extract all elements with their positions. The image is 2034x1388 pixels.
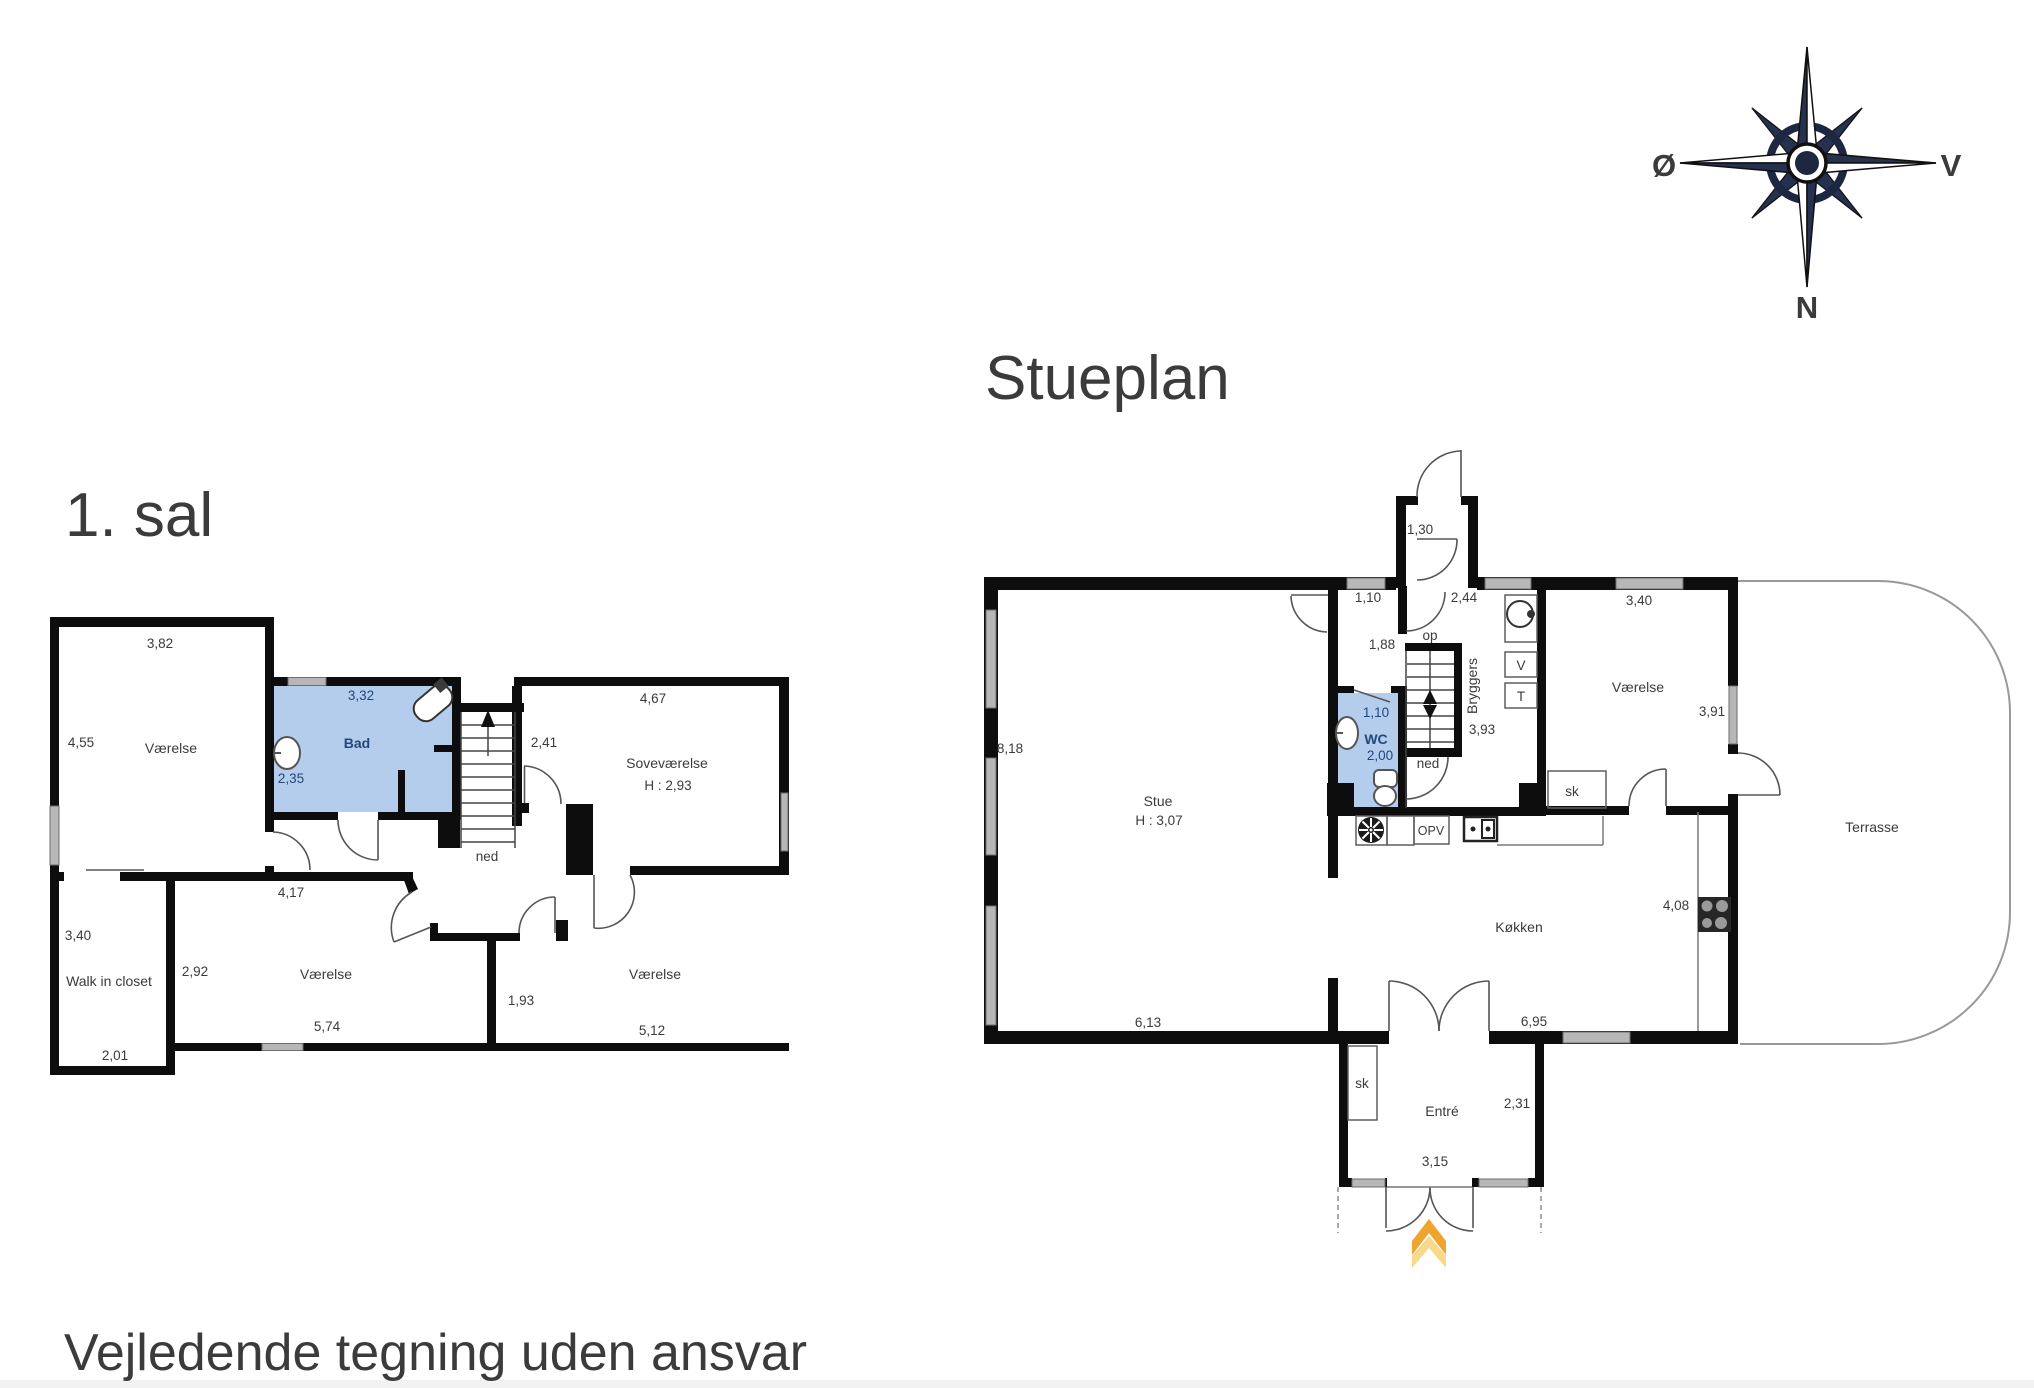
- svg-text:1,88: 1,88: [1369, 637, 1395, 652]
- svg-text:1. sal: 1. sal: [65, 481, 213, 550]
- svg-text:1,30: 1,30: [1407, 522, 1433, 537]
- svg-text:3,82: 3,82: [147, 636, 173, 651]
- svg-text:N: N: [1796, 290, 1818, 325]
- svg-text:2,44: 2,44: [1451, 590, 1478, 605]
- svg-text:1,10: 1,10: [1355, 590, 1381, 605]
- svg-text:2,92: 2,92: [182, 964, 208, 979]
- svg-text:Værelse: Værelse: [300, 966, 352, 982]
- svg-text:ned: ned: [1417, 756, 1440, 771]
- svg-text:Soveværelse: Soveværelse: [626, 755, 708, 771]
- svg-text:4,55: 4,55: [68, 735, 94, 750]
- svg-text:Værelse: Værelse: [629, 966, 681, 982]
- svg-text:2,01: 2,01: [102, 1048, 128, 1063]
- svg-text:V: V: [1941, 148, 1962, 183]
- svg-text:Walk in closet: Walk in closet: [66, 973, 152, 989]
- svg-text:sk: sk: [1565, 784, 1579, 799]
- svg-text:4,67: 4,67: [640, 691, 666, 706]
- svg-text:8,18: 8,18: [997, 741, 1023, 756]
- svg-text:3,91: 3,91: [1699, 704, 1725, 719]
- svg-text:H : 2,93: H : 2,93: [644, 778, 691, 793]
- svg-text:5,74: 5,74: [314, 1019, 341, 1034]
- svg-text:Bryggers: Bryggers: [1464, 658, 1480, 714]
- svg-text:Bad: Bad: [344, 735, 370, 751]
- svg-text:T: T: [1517, 689, 1525, 704]
- svg-text:Ø: Ø: [1652, 148, 1676, 183]
- svg-text:H : 3,07: H : 3,07: [1135, 813, 1182, 828]
- svg-text:OPV: OPV: [1418, 824, 1445, 838]
- svg-text:ned: ned: [476, 849, 499, 864]
- svg-text:V: V: [1516, 658, 1525, 673]
- svg-text:2,00: 2,00: [1367, 748, 1393, 763]
- svg-text:2,35: 2,35: [278, 771, 304, 786]
- svg-text:1,93: 1,93: [508, 993, 534, 1008]
- svg-text:Værelse: Værelse: [145, 740, 197, 756]
- svg-text:Entré: Entré: [1425, 1103, 1459, 1119]
- svg-text:Stueplan: Stueplan: [985, 344, 1230, 413]
- svg-text:Køkken: Køkken: [1495, 919, 1542, 935]
- svg-text:3,40: 3,40: [1626, 593, 1652, 608]
- svg-text:6,13: 6,13: [1135, 1015, 1161, 1030]
- svg-text:Værelse: Værelse: [1612, 679, 1664, 695]
- svg-text:5,12: 5,12: [639, 1023, 665, 1038]
- svg-text:4,08: 4,08: [1663, 898, 1689, 913]
- svg-text:6,95: 6,95: [1521, 1014, 1547, 1029]
- svg-text:Vejledende tegning uden ansvar: Vejledende tegning uden ansvar: [64, 1324, 807, 1382]
- svg-text:4,17: 4,17: [278, 885, 304, 900]
- svg-text:op: op: [1422, 628, 1437, 643]
- svg-text:2,31: 2,31: [1504, 1096, 1530, 1111]
- svg-text:sk: sk: [1355, 1076, 1369, 1091]
- svg-text:3,40: 3,40: [65, 928, 91, 943]
- svg-text:Stue: Stue: [1144, 793, 1173, 809]
- svg-text:3,15: 3,15: [1422, 1154, 1448, 1169]
- svg-text:WC: WC: [1364, 731, 1387, 747]
- svg-text:2,41: 2,41: [531, 735, 557, 750]
- svg-text:Terrasse: Terrasse: [1845, 819, 1899, 835]
- svg-text:1,10: 1,10: [1363, 705, 1389, 720]
- svg-text:3,32: 3,32: [348, 688, 374, 703]
- svg-text:3,93: 3,93: [1469, 722, 1495, 737]
